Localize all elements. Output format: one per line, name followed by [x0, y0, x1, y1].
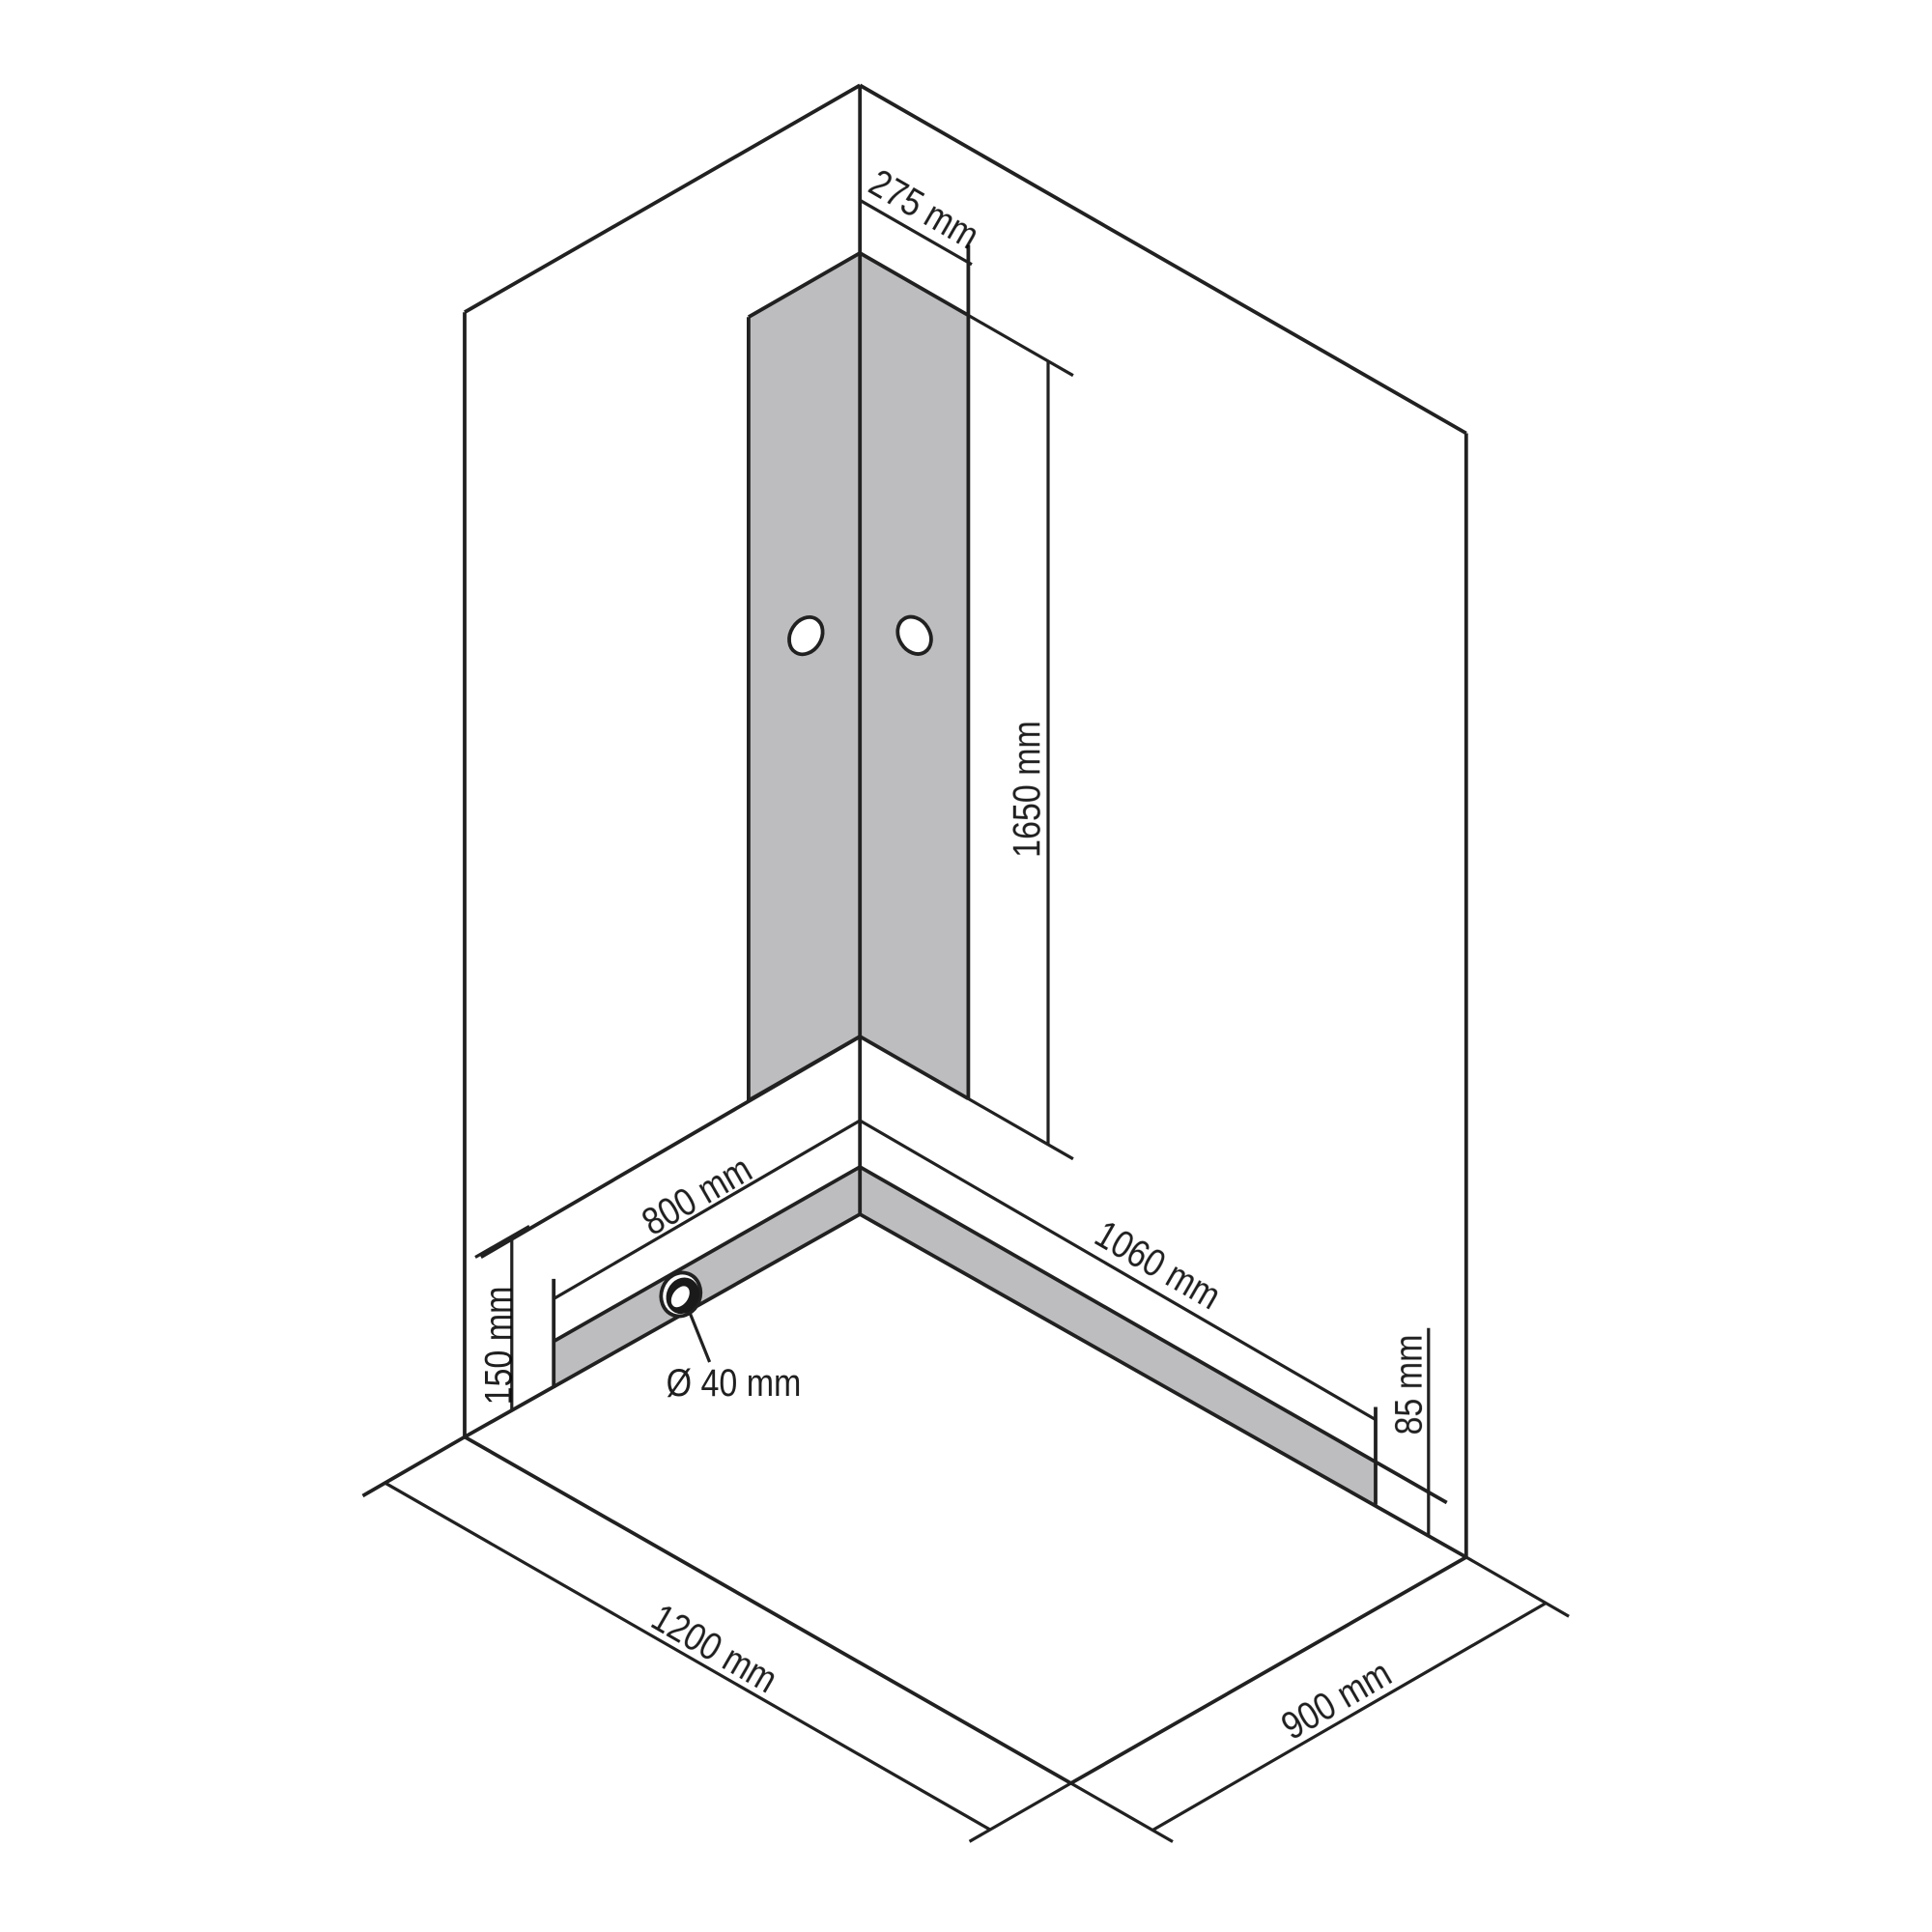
- svg-text:1650 mm: 1650 mm: [1005, 721, 1048, 858]
- svg-text:150 mm: 150 mm: [476, 1287, 520, 1406]
- svg-text:85 mm: 85 mm: [1386, 1335, 1430, 1435]
- svg-text:Ø 40 mm: Ø 40 mm: [667, 1361, 802, 1405]
